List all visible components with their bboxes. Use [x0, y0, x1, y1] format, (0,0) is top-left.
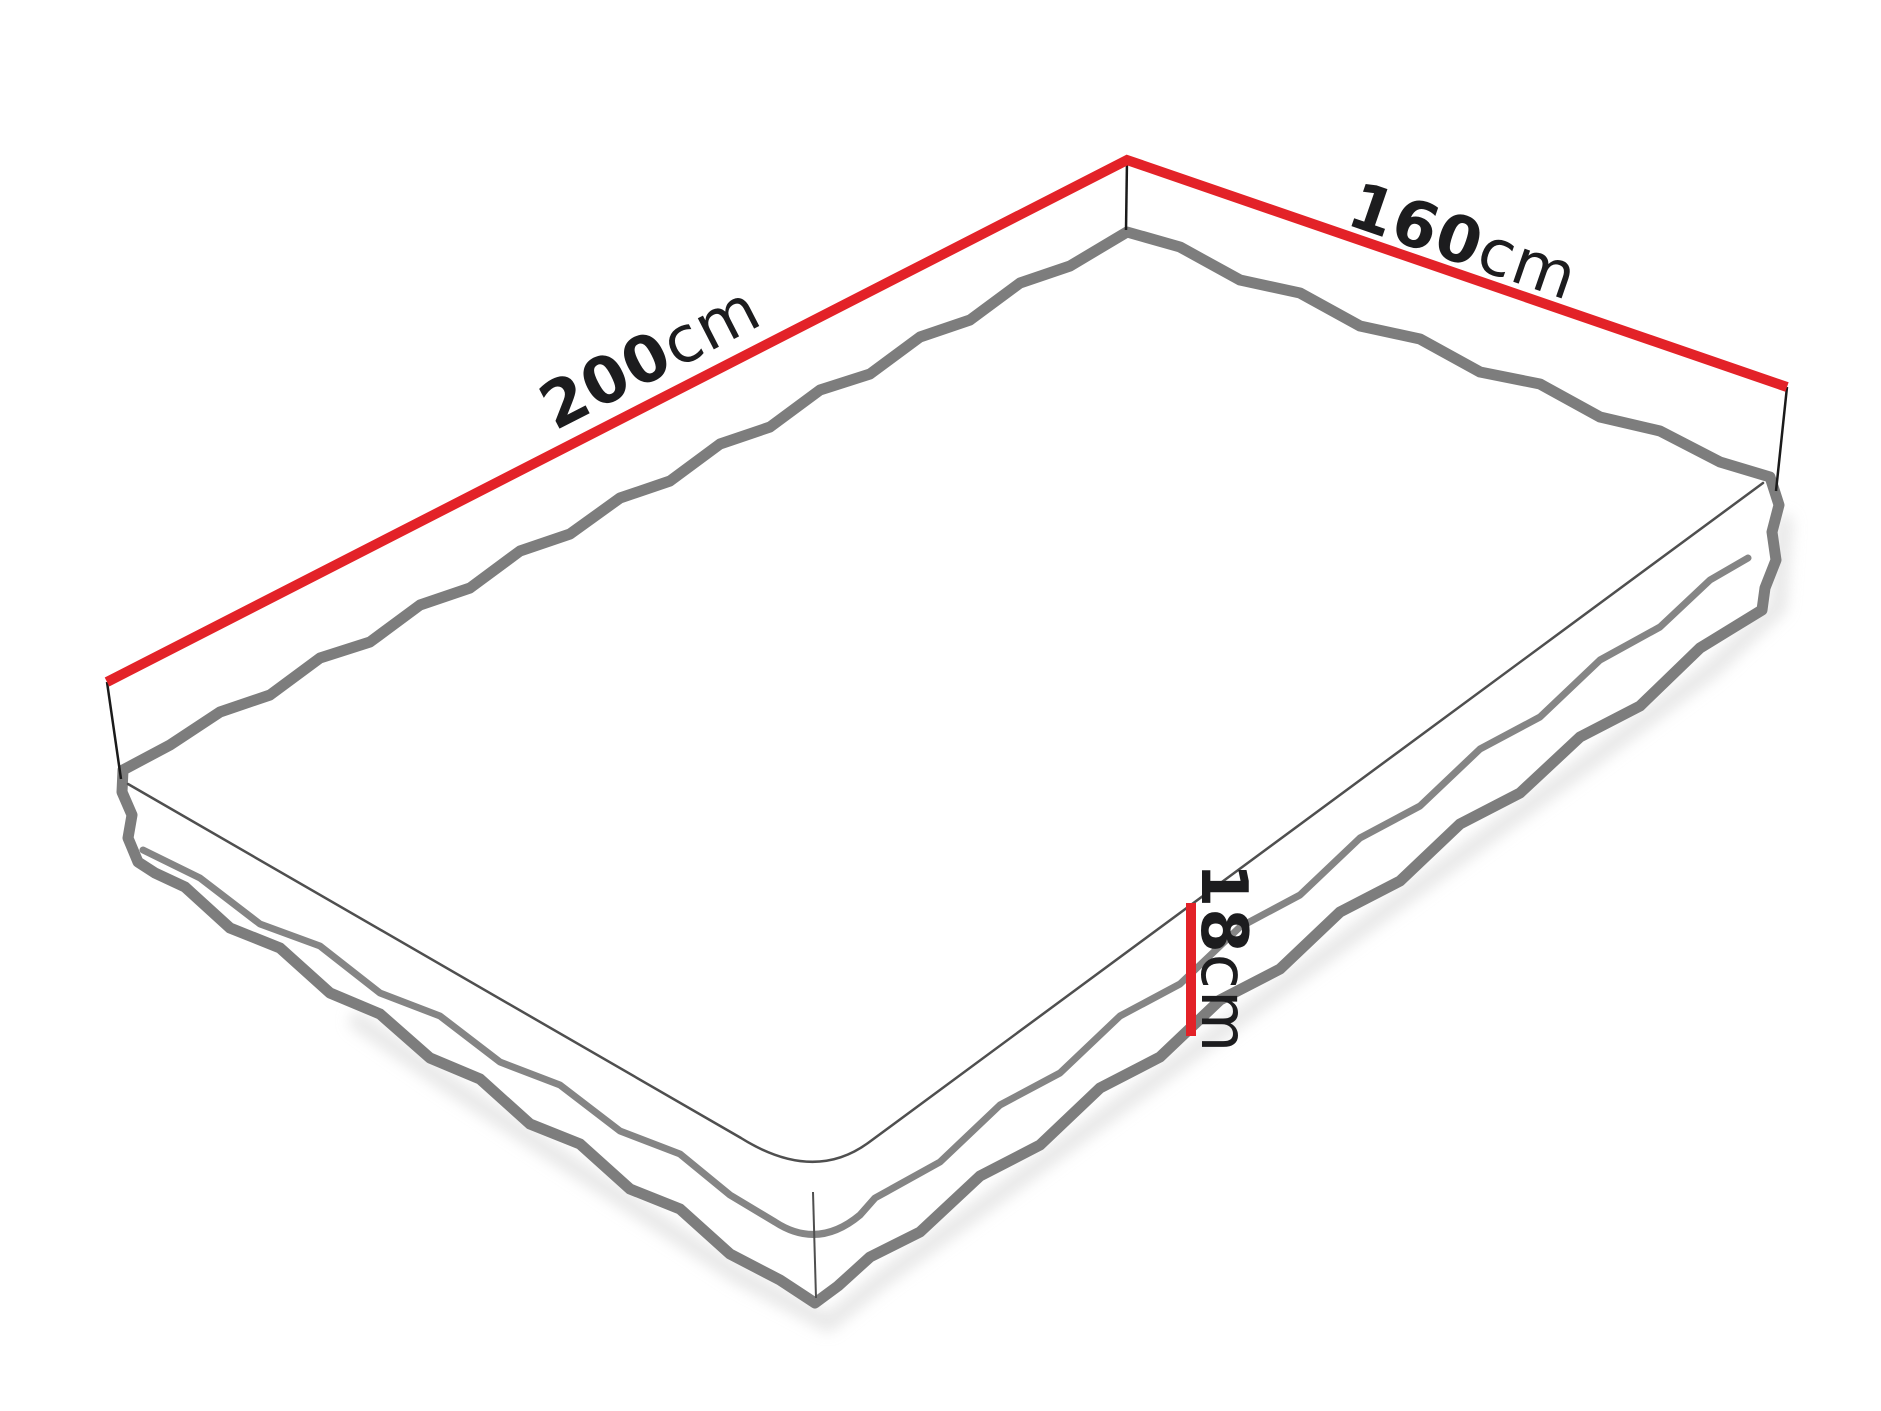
height-unit: cm [1186, 954, 1260, 1054]
length-extension-line [107, 682, 121, 779]
height-value: 18 [1186, 863, 1260, 954]
mattress-outline [122, 232, 1779, 1303]
apex-extension-line [1126, 160, 1127, 230]
width-dimension-label: 160cm [1339, 169, 1586, 316]
mattress-illustration [122, 232, 1779, 1303]
width-value: 160 [1339, 169, 1492, 283]
mattress-dimensions-diagram: 200cm 160cm 18cm [0, 0, 1881, 1411]
mattress-diagram-canvas: 200cm 160cm 18cm [0, 0, 1881, 1411]
height-dimension-label: 18cm [1186, 863, 1260, 1054]
width-extension-line [1776, 387, 1787, 491]
